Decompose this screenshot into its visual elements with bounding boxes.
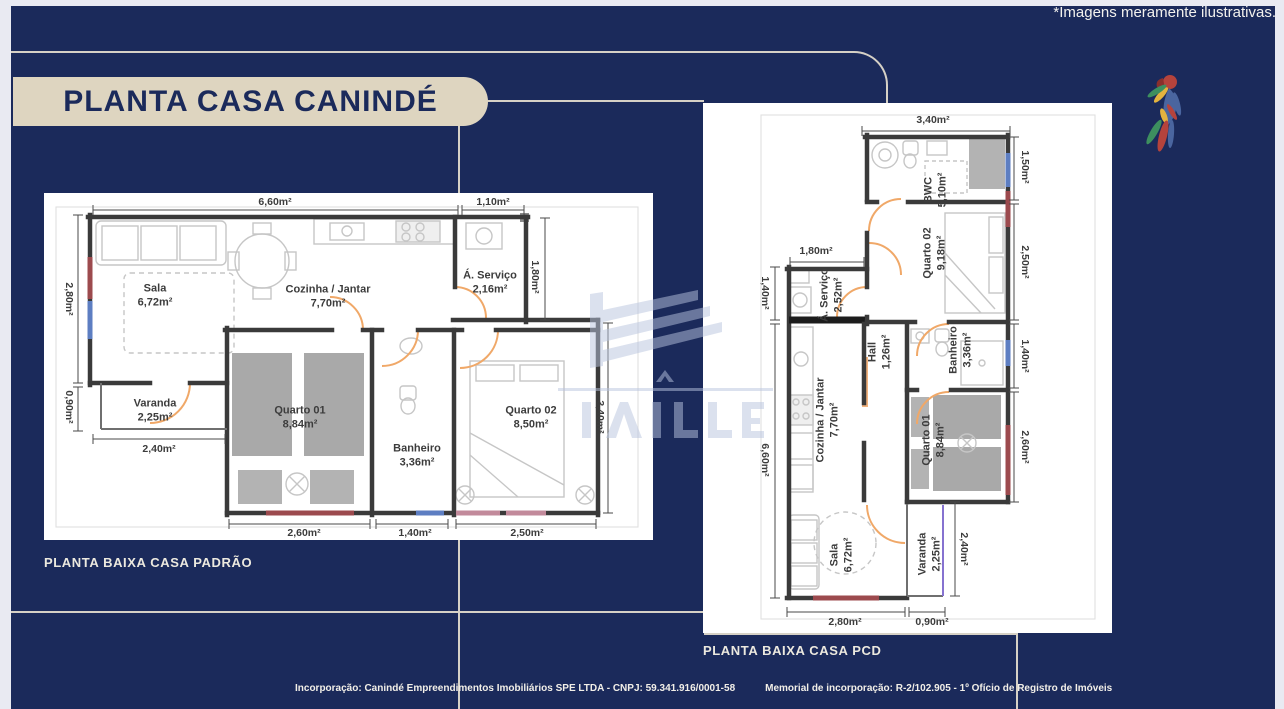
room-label-quarto01: Quarto 01 8,84m² <box>274 404 325 433</box>
dim-label-top: 3,40m² <box>916 114 949 126</box>
room-label-hall: Hall 1,26m² <box>866 335 895 370</box>
floor-plan-panel-pcd: BWC 5,10m² Quarto 02 9,18m² Á. Serviço 2… <box>703 103 1112 633</box>
dim-label-right-quarto01: 2,60m² <box>1019 430 1031 463</box>
parrot-logo-icon <box>1136 68 1188 161</box>
dim-label-bottom-quarto01: 2,60m² <box>287 527 320 539</box>
footer: Incorporação: Canindé Empreendimentos Im… <box>295 683 1112 694</box>
room-label-quarto02: Quarto 02 8,50m² <box>505 404 556 433</box>
plan-caption-padrao: PLANTA BAIXA CASA PADRÃO <box>44 555 252 570</box>
dim-label-bottom-banheiro: 1,40m² <box>398 527 431 539</box>
frame-line-under-badge <box>486 100 704 102</box>
room-label-quarto01: Quarto 01 8,84m² <box>920 414 949 465</box>
room-label-servico: Á. Serviço 2,52m² <box>818 268 847 322</box>
frame-line-top <box>11 51 852 53</box>
frame-corner-top-right <box>852 51 888 103</box>
floor-plan-panel-padrao: Sala 6,72m² Cozinha / Jantar 7,70m² Á. S… <box>44 193 653 540</box>
dim-label-left-main: 6,60m² <box>759 443 771 476</box>
dim-label-right-quarto02: 2,50m² <box>1019 245 1031 278</box>
title-badge: PLANTA CASA CANINDÉ <box>13 77 488 126</box>
room-label-sala: Sala 6,72m² <box>138 282 173 311</box>
frame-line-bottom-left <box>11 611 704 613</box>
room-label-varanda: Varanda 2,25m² <box>916 533 945 576</box>
room-label-sala: Sala 6,72m² <box>828 538 857 573</box>
room-label-cozinha: Cozinha / Jantar 7,70m² <box>814 378 843 463</box>
dim-label-right-bwc: 1,50m² <box>1019 150 1031 183</box>
plan-caption-pcd: PLANTA BAIXA CASA PCD <box>703 643 881 658</box>
dim-label-bottom-varanda: 0,90m² <box>915 616 948 628</box>
footer-memorial-text: Memorial de incorporação: R-2/102.905 - … <box>765 683 1112 694</box>
floor-plan-drawing-padrao <box>44 193 653 540</box>
dim-label-left-servico-w: 1,80m² <box>799 245 832 257</box>
dim-label-servico-height: 1,80m² <box>529 260 541 293</box>
dim-label-right-banheiro: 1,40m² <box>1019 339 1031 372</box>
dim-label-top-main: 6,60m² <box>258 196 291 208</box>
dim-label-varanda-height: 2,40m² <box>958 532 970 565</box>
room-label-servico: Á. Serviço 2,16m² <box>463 269 517 298</box>
dim-label-left-sala: 2,80m² <box>63 282 75 315</box>
room-label-banheiro: Banheiro 3,36m² <box>947 326 976 374</box>
footer-incorporacao-text: Incorporação: Canindé Empreendimentos Im… <box>295 683 735 694</box>
room-label-quarto02: Quarto 02 9,18m² <box>921 227 950 278</box>
room-label-varanda: Varanda 2,25m² <box>134 397 177 426</box>
dim-label-left-servico-h: 1,40m² <box>759 276 771 309</box>
dim-label-varanda-width: 2,40m² <box>142 443 175 455</box>
dim-label-bottom-quarto02: 2,50m² <box>510 527 543 539</box>
disclaimer-text: *Imagens meramente ilustrativas. <box>1053 4 1276 21</box>
room-label-banheiro: Banheiro 3,36m² <box>393 442 441 471</box>
floor-plan-drawing-pcd <box>703 103 1112 633</box>
dim-label-right-height: 3,40m² <box>594 400 606 433</box>
room-label-bwc: BWC 5,10m² <box>922 173 951 208</box>
page-title: PLANTA CASA CANINDÉ <box>63 85 438 119</box>
room-label-cozinha: Cozinha / Jantar 7,70m² <box>286 283 371 312</box>
dim-label-top-servico: 1,10m² <box>476 196 509 208</box>
dim-label-bottom-sala: 2,80m² <box>828 616 861 628</box>
frame-line-bottom-right <box>704 633 1018 635</box>
frame-line-vertical-right <box>1016 633 1018 709</box>
dim-label-left-varanda: 0,90m² <box>63 390 75 423</box>
